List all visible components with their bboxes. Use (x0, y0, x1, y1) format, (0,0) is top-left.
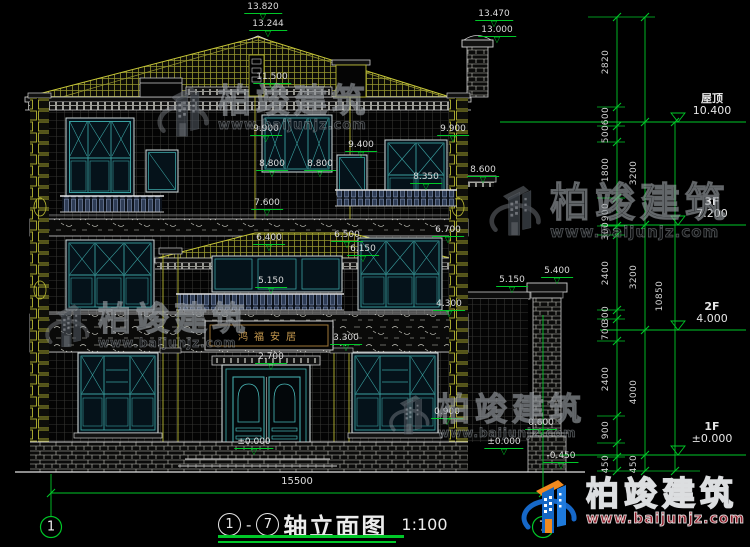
elevation-flag: 11.500▽ (253, 73, 291, 91)
elevation-flag: 6.700▽ (432, 226, 464, 244)
dimension-label: 3200 (629, 161, 639, 186)
level-triangle-icon: ▽ (437, 135, 469, 143)
level-triangle-icon: ▽ (256, 170, 288, 178)
overall-width-dimension: 15500 (281, 476, 313, 487)
floor-level-label: 3F7.200 (667, 196, 750, 220)
elevation-flag: 0.900▽ (431, 408, 463, 426)
elevation-flag: -0.450▽ (543, 452, 578, 470)
watermark-text: 柏竣建筑www.baijunjz.com (98, 302, 250, 349)
brand-logo-icon (488, 183, 544, 239)
elevation-flag: 5.400▽ (541, 267, 573, 285)
level-triangle-icon: ▽ (234, 448, 273, 456)
dimension-label: 2400 (601, 261, 611, 286)
dimension-label: 450 (601, 455, 611, 473)
level-triangle-icon: ▽ (304, 170, 336, 178)
level-triangle-icon: ▽ (484, 448, 523, 456)
drawing-scale: 1:100 (401, 515, 447, 534)
level-triangle-icon: ▽ (478, 36, 516, 44)
brand-url: www.baijunjz.com (586, 512, 745, 526)
brand-url: www.baijunjz.com (550, 225, 730, 240)
brand-url: www.baijunjz.com (98, 337, 250, 349)
dimension-label: 900 (601, 421, 611, 439)
floor-elevation: ±0.000 (667, 433, 750, 445)
level-triangle-icon: ▽ (251, 209, 283, 217)
level-triangle-icon: ▽ (330, 344, 362, 352)
axis-bubble-end: 7 (256, 513, 279, 536)
level-triangle-icon: ▽ (432, 236, 464, 244)
elevation-flag: 2.700▽ (255, 353, 287, 371)
floor-elevation: 4.000 (667, 313, 750, 325)
level-triangle-icon: ▽ (496, 286, 528, 294)
floor-level-label: 1F±0.000 (667, 421, 750, 445)
watermark-text: 柏竣建筑www.baijunjz.com (586, 477, 745, 526)
elevation-flag: 5.150▽ (255, 277, 287, 295)
dimension-label: 600 (601, 107, 611, 125)
dimension-label: 2400 (601, 367, 611, 392)
level-triangle-icon: ▽ (250, 135, 282, 143)
title-underline-thin (218, 541, 396, 543)
dimension-label: 4000 (629, 380, 639, 405)
level-triangle-icon: ▽ (431, 418, 463, 426)
level-triangle-icon: ▽ (255, 363, 287, 371)
level-triangle-icon: ▽ (410, 183, 442, 191)
annotation-layer: 13.820▽13.244▽13.470▽13.000▽11.500▽9.900… (0, 0, 750, 547)
brand-logo-icon (156, 84, 212, 140)
watermark-text: 柏竣建筑www.baijunjz.com (218, 84, 370, 132)
level-triangle-icon: ▽ (249, 30, 287, 38)
level-triangle-icon: ▽ (347, 255, 379, 263)
brand-watermark: 柏竣建筑www.baijunjz.com (520, 477, 745, 537)
title-dash: - (246, 516, 251, 534)
axis-number: 7 (539, 520, 547, 535)
elevation-flag: 6.150▽ (347, 245, 379, 263)
level-triangle-icon: ▽ (467, 176, 499, 184)
dimension-label: 10850 (655, 281, 665, 312)
dimension-label: 1800 (601, 158, 611, 183)
elevation-flag: ±0.000▽ (484, 438, 523, 456)
elevation-flag: 7.600▽ (251, 199, 283, 217)
elevation-flag: 8.800▽ (256, 160, 288, 178)
elevation-flag: 9.900▽ (250, 125, 282, 143)
brand-name: 柏竣建筑 (586, 477, 745, 510)
dimension-label: 900 (601, 203, 611, 221)
title-underline-thick (218, 535, 404, 538)
brand-logo-icon (44, 302, 92, 350)
brand-watermark: 柏竣建筑www.baijunjz.com (44, 302, 250, 350)
level-triangle-icon: ▽ (525, 429, 557, 437)
elevation-flag: 5.150▽ (496, 276, 528, 294)
dimension-label: 300 (601, 222, 611, 240)
dimension-label: 500 (601, 125, 611, 143)
dimension-label: 2820 (601, 50, 611, 75)
elevation-flag: 9.900▽ (437, 125, 469, 143)
brand-logo-icon (520, 477, 580, 537)
level-triangle-icon: ▽ (255, 287, 287, 295)
elevation-flag: 6.400▽ (253, 234, 285, 252)
brand-name: 柏竣建筑 (218, 84, 370, 117)
elevation-flag: 9.400▽ (345, 141, 377, 159)
elevation-flag: 13.244▽ (249, 20, 287, 38)
floor-level-label: 2F4.000 (667, 301, 750, 325)
elevation-flag: 4.300▽ (433, 300, 465, 318)
brand-name: 柏竣建筑 (98, 302, 250, 335)
elevation-flag: 13.000▽ (478, 26, 516, 44)
floor-elevation: 10.400 (667, 105, 750, 117)
brand-url: www.baijunjz.com (218, 119, 370, 132)
dimension-label: 3200 (629, 265, 639, 290)
elevation-flag: 8.800▽ (304, 160, 336, 178)
elevation-flag: 8.350▽ (410, 173, 442, 191)
cad-elevation-screenshot: 13.820▽13.244▽13.470▽13.000▽11.500▽9.900… (0, 0, 750, 547)
axis-bubble-start: 1 (218, 513, 241, 536)
level-triangle-icon: ▽ (543, 462, 578, 470)
level-triangle-icon: ▽ (253, 244, 285, 252)
level-triangle-icon: ▽ (253, 83, 291, 91)
level-triangle-icon: ▽ (433, 310, 465, 318)
elevation-flag: 3.300▽ (330, 334, 362, 352)
level-triangle-icon: ▽ (541, 277, 573, 285)
floor-level-label: 屋顶10.400 (667, 93, 750, 117)
brand-logo-icon (388, 393, 432, 437)
level-triangle-icon: ▽ (345, 151, 377, 159)
dimension-label: 700 (601, 322, 611, 340)
elevation-flag: 8.600▽ (467, 166, 499, 184)
dimension-label: 450 (629, 455, 639, 473)
floor-elevation: 7.200 (667, 208, 750, 220)
elevation-flag: 0.600▽ (525, 419, 557, 437)
elevation-flag: ±0.000▽ (234, 438, 273, 456)
axis-number: 1 (47, 520, 55, 535)
